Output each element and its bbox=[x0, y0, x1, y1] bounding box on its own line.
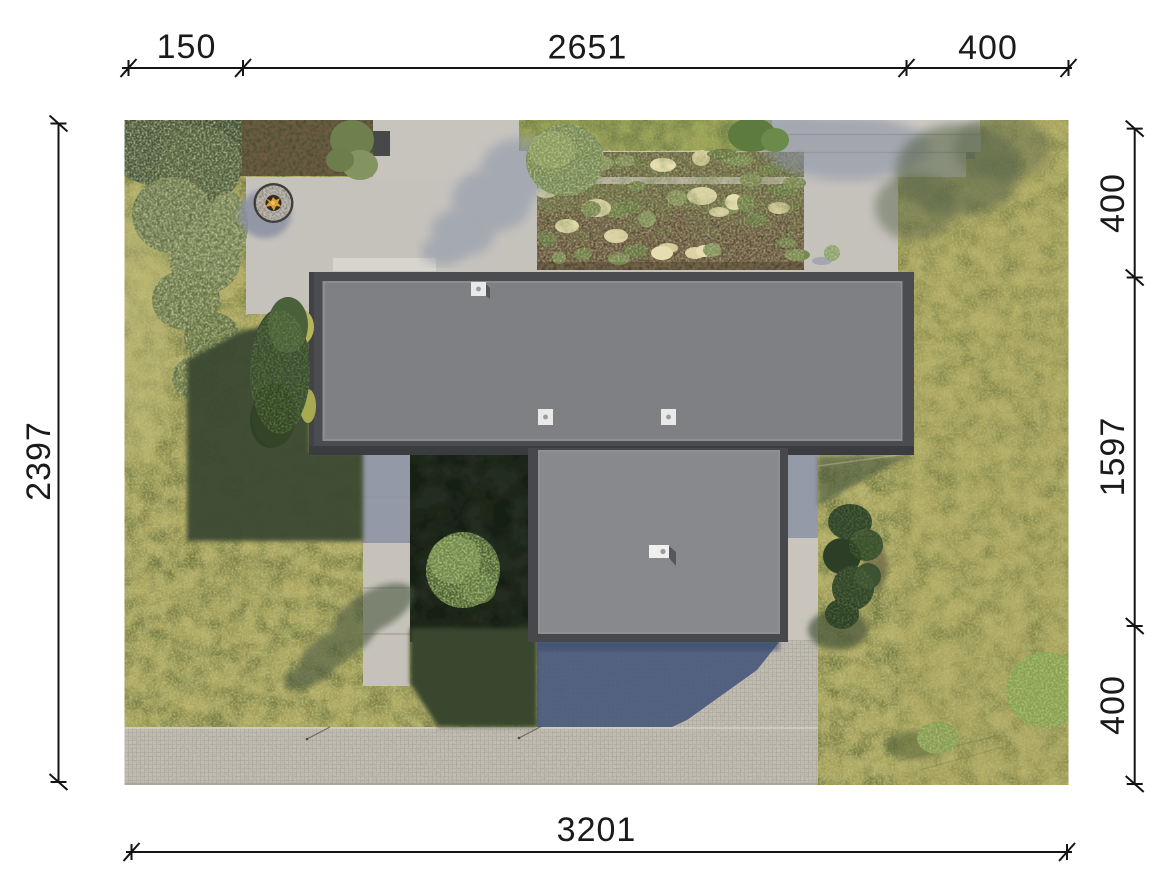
svg-text:400: 400 bbox=[1094, 675, 1132, 735]
svg-text:3201: 3201 bbox=[557, 811, 637, 849]
svg-text:1597: 1597 bbox=[1094, 417, 1132, 497]
svg-text:400: 400 bbox=[1094, 173, 1132, 233]
svg-text:2651: 2651 bbox=[548, 29, 628, 67]
svg-text:2397: 2397 bbox=[20, 421, 58, 501]
svg-text:400: 400 bbox=[958, 29, 1018, 67]
svg-text:150: 150 bbox=[157, 28, 217, 66]
